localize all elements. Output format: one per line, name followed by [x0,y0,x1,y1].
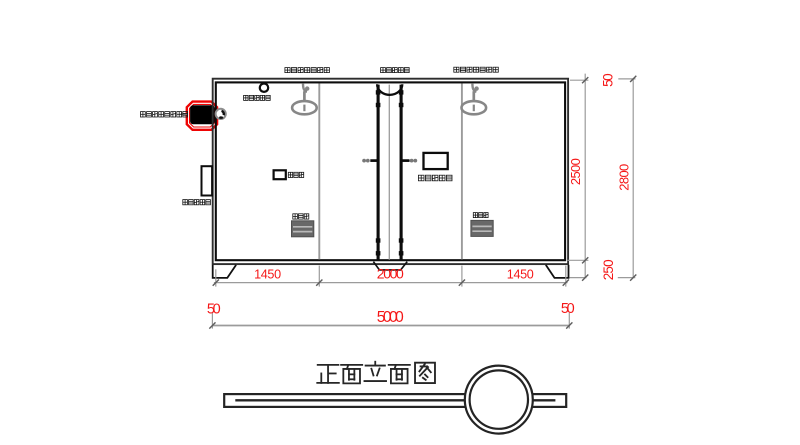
svg-text:5000: 5000 [377,309,404,326]
svg-text:2800: 2800 [616,164,631,191]
svg-text:2500: 2500 [568,158,583,185]
svg-text:50: 50 [561,301,575,317]
svg-text:50: 50 [207,301,221,317]
svg-text:1450: 1450 [507,268,534,282]
svg-text:2000: 2000 [377,266,404,282]
svg-text:50: 50 [601,73,616,87]
svg-text:1450: 1450 [254,268,281,282]
svg-text:250: 250 [601,259,616,280]
